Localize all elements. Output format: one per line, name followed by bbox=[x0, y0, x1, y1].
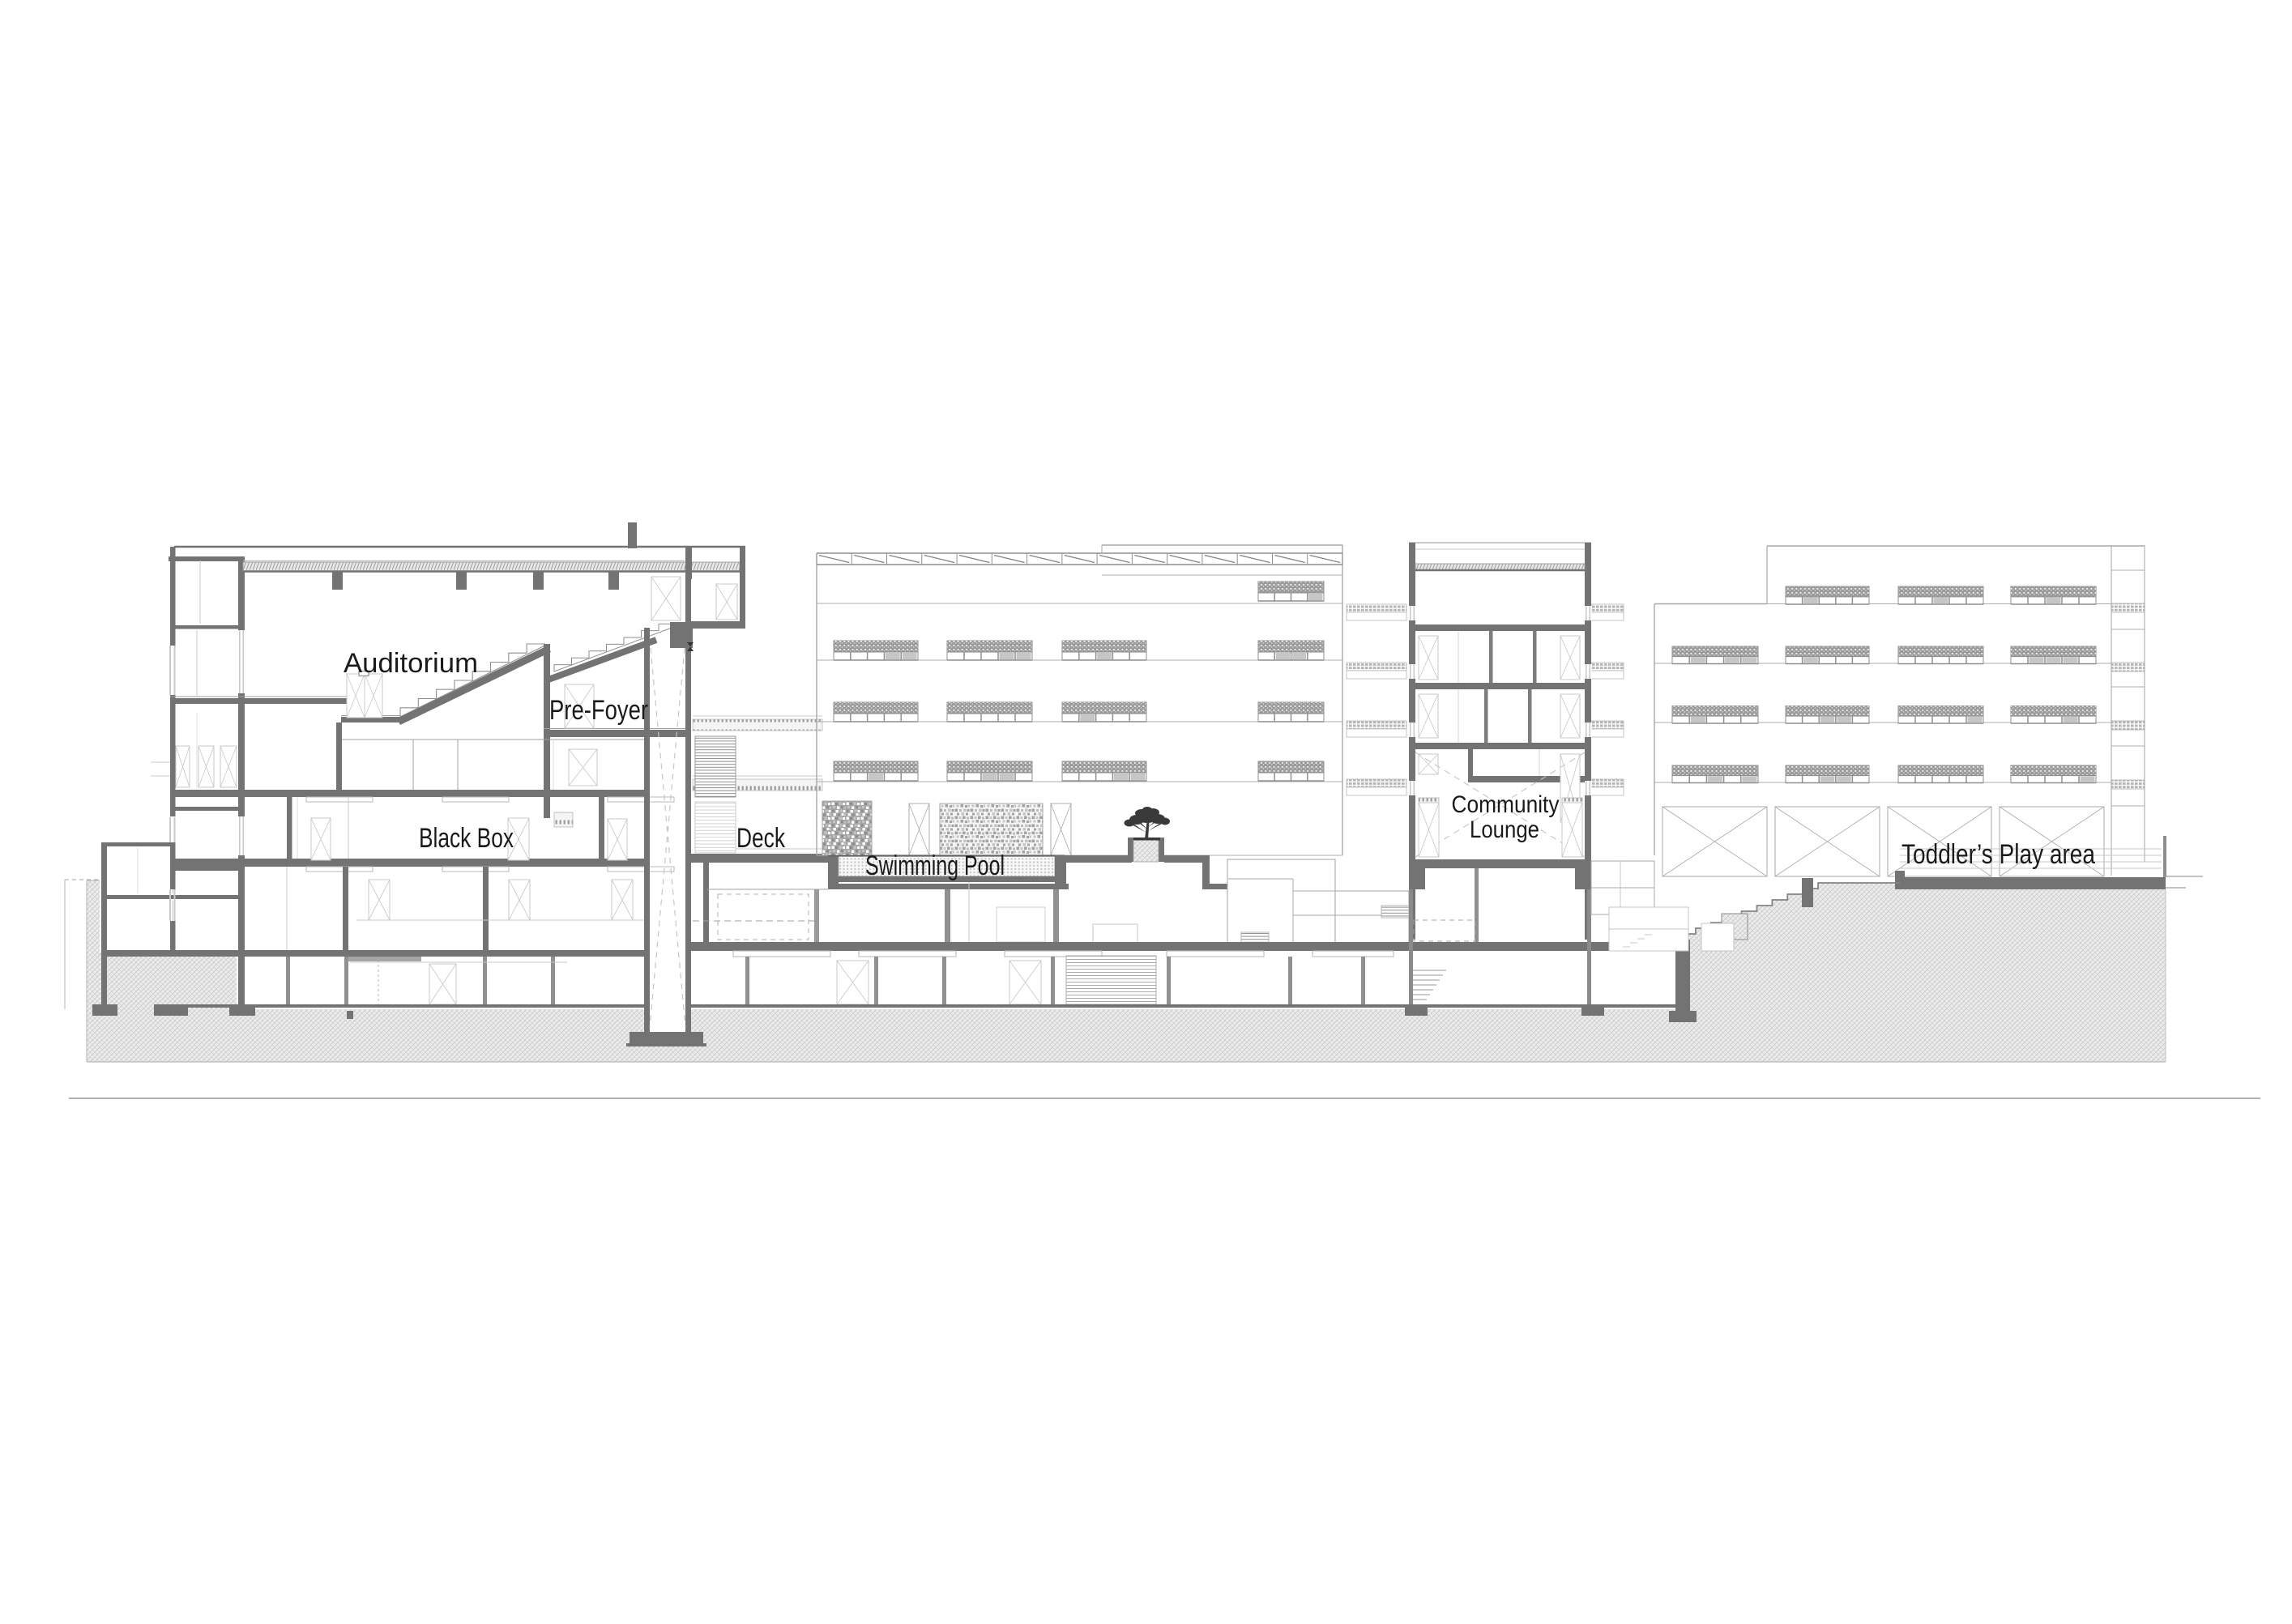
svg-text:Lounge: Lounge bbox=[1470, 816, 1539, 843]
svg-text:Deck: Deck bbox=[736, 823, 786, 854]
svg-text:Toddler’s Play area: Toddler’s Play area bbox=[1901, 839, 2095, 870]
svg-text:Black Box: Black Box bbox=[419, 823, 514, 854]
svg-text:Swimming Pool: Swimming Pool bbox=[865, 850, 1005, 881]
svg-text:Auditorium: Auditorium bbox=[344, 648, 478, 679]
svg-text:Community: Community bbox=[1452, 791, 1560, 818]
svg-text:Pre-Foyer: Pre-Foyer bbox=[549, 695, 648, 726]
